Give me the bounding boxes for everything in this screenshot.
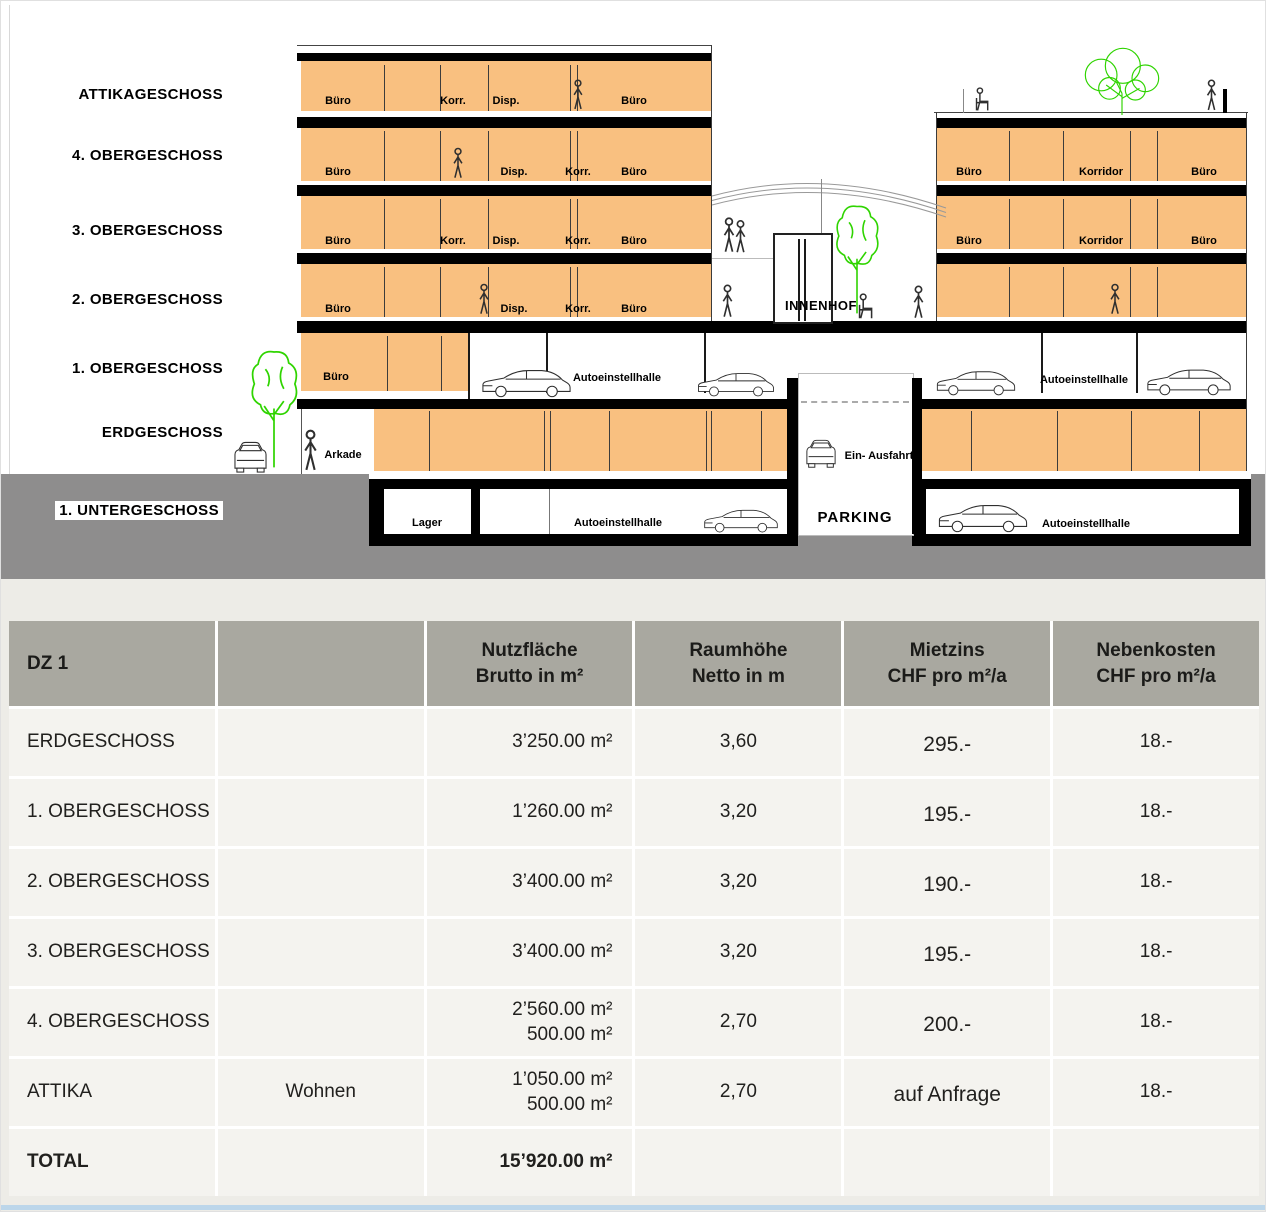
roof-outline-left xyxy=(297,45,711,46)
bottom-accent-bar xyxy=(1,1205,1266,1210)
big-tree-icon xyxy=(1061,45,1183,115)
person-icon xyxy=(733,219,748,256)
window-mullion xyxy=(550,411,551,471)
cell-floor: ERDGESCHOSS xyxy=(9,709,215,776)
roof-slab-right xyxy=(936,118,1246,128)
window-mullion xyxy=(971,411,972,471)
window-mullion xyxy=(1063,199,1064,249)
attika-roof-slab xyxy=(297,53,711,61)
cell-floor: 4. OBERGESCHOSS xyxy=(9,989,215,1056)
window-mullion xyxy=(1130,267,1131,317)
slab xyxy=(297,399,791,409)
slab xyxy=(297,117,711,128)
room-label: Büro xyxy=(621,236,647,247)
person-icon xyxy=(301,429,320,474)
room-label: Büro xyxy=(325,236,351,247)
floor-label-1og: 1. OBERGESCHOSS xyxy=(1,360,223,378)
roof-post xyxy=(1223,89,1227,113)
room-label: Büro xyxy=(621,304,647,315)
person-icon xyxy=(477,283,491,317)
cell-extra xyxy=(1053,1129,1259,1196)
window-mullion xyxy=(761,411,762,471)
window-mullion xyxy=(488,65,489,111)
slab xyxy=(297,253,711,264)
room-label: Büro xyxy=(956,236,982,247)
table-header-raumhoehe: Raumhöhe Netto in m xyxy=(635,621,841,706)
person-seated-icon xyxy=(973,87,992,113)
page: ATTIKAGESCHOSS 4. OBERGESCHOSS 3. OBERGE… xyxy=(0,0,1266,1212)
ramp-dashed-line xyxy=(801,401,909,403)
cell-rent: 195.- xyxy=(844,919,1050,986)
window-mullion xyxy=(1157,131,1158,181)
cell-area-total: 15’920.00 m² xyxy=(427,1129,633,1196)
room-label: Büro xyxy=(621,96,647,107)
cell-usage xyxy=(218,849,424,916)
cell-extra: 18.- xyxy=(1053,919,1259,986)
tree-icon xyxy=(247,337,301,475)
table-header-dz1: DZ 1 xyxy=(9,621,215,706)
window-mullion xyxy=(1057,411,1058,471)
window-mullion xyxy=(1130,131,1131,181)
courtyard-slab xyxy=(297,321,1246,333)
room-label: Büro xyxy=(323,372,349,383)
cell-extra: 18.- xyxy=(1053,849,1259,916)
cell-extra: 18.- xyxy=(1053,989,1259,1056)
table-header-usage xyxy=(218,621,424,706)
table-header-nutzflaeche: Nutzfläche Brutto in m² xyxy=(427,621,633,706)
room-label: Büro xyxy=(325,96,351,107)
cell-extra: 18.- xyxy=(1053,1059,1259,1126)
room-label: Disp. xyxy=(493,236,520,247)
car-icon xyxy=(935,498,1031,534)
wall xyxy=(468,333,470,399)
window-mullion xyxy=(384,131,385,181)
table-header-mietzins: Mietzins CHF pro m²/a xyxy=(844,621,1050,706)
window-mullion xyxy=(609,411,610,471)
room-label: Korr. xyxy=(565,236,591,247)
window-mullion xyxy=(1063,267,1064,317)
window-mullion xyxy=(711,411,712,471)
cell-rent: 195.- xyxy=(844,779,1050,846)
person-icon xyxy=(571,79,585,112)
right-block-edge xyxy=(1246,112,1247,471)
window-mullion xyxy=(1009,131,1010,181)
cell-usage xyxy=(218,709,424,776)
cell-height: 2,70 xyxy=(635,989,841,1056)
room-label: Korr. xyxy=(565,167,591,178)
building-section-diagram: ATTIKAGESCHOSS 4. OBERGESCHOSS 3. OBERGE… xyxy=(1,1,1266,601)
floor-label-eg: ERDGESCHOSS xyxy=(1,424,223,442)
cell-area: 1’260.00 m² xyxy=(427,779,633,846)
cell-usage xyxy=(218,919,424,986)
window-mullion xyxy=(706,411,707,471)
window-mullion xyxy=(384,65,385,111)
cell-height: 2,70 xyxy=(635,1059,841,1126)
window-mullion xyxy=(488,131,489,181)
slab xyxy=(297,185,711,196)
cell-height: 3,60 xyxy=(635,709,841,776)
cell-usage xyxy=(218,779,424,846)
cell-height xyxy=(635,1129,841,1196)
window-mullion xyxy=(1063,131,1064,181)
window-mullion xyxy=(440,131,441,181)
window-mullion xyxy=(1131,411,1132,471)
room-label: Büro xyxy=(325,167,351,178)
room-label: Autoeinstellhalle xyxy=(574,518,662,529)
slab xyxy=(936,253,1246,264)
floor-label-4og: 4. OBERGESCHOSS xyxy=(1,147,223,165)
cell-rent: 190.- xyxy=(844,849,1050,916)
cell-rent: auf Anfrage xyxy=(844,1059,1050,1126)
window-mullion xyxy=(488,199,489,249)
roof-pole xyxy=(963,89,964,113)
room-label: Büro xyxy=(1191,167,1217,178)
cell-height: 3,20 xyxy=(635,779,841,846)
cell-rent xyxy=(844,1129,1050,1196)
room-label: Büro xyxy=(325,304,351,315)
window-mullion xyxy=(1199,411,1200,471)
floor-label-3og: 3. OBERGESCHOSS xyxy=(1,222,223,240)
room-label: PARKING xyxy=(817,510,892,525)
cell-floor: 3. OBERGESCHOSS xyxy=(9,919,215,986)
room-label: Disp. xyxy=(501,167,528,178)
room-label: Disp. xyxy=(493,96,520,107)
shaft-line xyxy=(821,179,822,233)
cell-height: 3,20 xyxy=(635,919,841,986)
car-icon xyxy=(934,365,1018,397)
hall-column xyxy=(1136,333,1138,393)
slab xyxy=(918,399,1246,409)
cell-area: 3’400.00 m² xyxy=(427,919,633,986)
window-mullion xyxy=(429,411,430,471)
floor-label-2og: 2. OBERGESCHOSS xyxy=(1,291,223,309)
car-icon xyxy=(701,504,781,534)
room-label: Korr. xyxy=(440,236,466,247)
table-header-nebenkosten: Nebenkosten CHF pro m²/a xyxy=(1053,621,1259,706)
car-icon xyxy=(695,367,777,398)
courtyard-arch xyxy=(704,164,951,220)
cell-rent: 295.- xyxy=(844,709,1050,776)
cell-area: 3’400.00 m² xyxy=(427,849,633,916)
cell-floor: 1. OBERGESCHOSS xyxy=(9,779,215,846)
room-label: Ein- Ausfahrt xyxy=(845,451,914,462)
window-mullion xyxy=(1157,267,1158,317)
room-label: Korridor xyxy=(1079,236,1123,247)
cell-floor: 2. OBERGESCHOSS xyxy=(9,849,215,916)
cell-floor-total: TOTAL xyxy=(9,1129,215,1196)
window-mullion xyxy=(441,336,442,391)
person-icon xyxy=(1204,79,1219,113)
window-mullion xyxy=(384,267,385,317)
cell-area: 2’560.00 m² 500.00 m² xyxy=(427,989,633,1056)
window-mullion xyxy=(1130,199,1131,249)
person-icon xyxy=(911,285,926,321)
window-mullion xyxy=(1157,199,1158,249)
car-icon xyxy=(479,363,574,399)
cell-area: 1’050.00 m² 500.00 m² xyxy=(427,1059,633,1126)
terrace-line xyxy=(712,258,774,259)
room-label: Autoeinstellhalle xyxy=(573,373,661,384)
car-icon xyxy=(801,439,841,469)
room-label: Lager xyxy=(412,518,442,529)
floor-eg-left xyxy=(374,409,787,471)
hall-column xyxy=(549,489,550,534)
cell-extra: 18.- xyxy=(1053,709,1259,776)
room-label: Korr. xyxy=(440,96,466,107)
slab xyxy=(936,185,1246,196)
room-label: Autoeinstellhalle xyxy=(1040,375,1128,386)
person-icon xyxy=(451,147,465,181)
ramp-wall xyxy=(787,378,798,534)
cell-extra: 18.- xyxy=(1053,779,1259,846)
room-label: INNENHOF xyxy=(785,299,857,312)
person-icon xyxy=(1108,283,1122,317)
cell-usage xyxy=(218,1129,424,1196)
person-icon xyxy=(720,283,735,321)
window-mullion xyxy=(544,411,545,471)
room-label: Büro xyxy=(621,167,647,178)
cell-area: 3’250.00 m² xyxy=(427,709,633,776)
window-mullion xyxy=(440,267,441,317)
floor-label-attikageschoss: ATTIKAGESCHOSS xyxy=(1,86,223,104)
cell-height: 3,20 xyxy=(635,849,841,916)
room-label: Korridor xyxy=(1079,167,1123,178)
cell-rent: 200.- xyxy=(844,989,1050,1056)
floor-label-1ug: 1. UNTERGESCHOSS xyxy=(1,502,223,520)
cell-usage: Wohnen xyxy=(218,1059,424,1126)
room-label: Autoeinstellhalle xyxy=(1042,519,1130,530)
room-label: Arkade xyxy=(324,450,361,461)
room-label: Büro xyxy=(1191,236,1217,247)
window-mullion xyxy=(387,336,388,391)
window-mullion xyxy=(1009,199,1010,249)
cell-floor: ATTIKA xyxy=(9,1059,215,1126)
car-icon xyxy=(1144,363,1234,397)
room-label: Korr. xyxy=(565,304,591,315)
floor-2og-right xyxy=(936,264,1246,317)
window-mullion xyxy=(1009,267,1010,317)
room-label: Disp. xyxy=(501,304,528,315)
cell-usage xyxy=(218,989,424,1056)
room-label: Büro xyxy=(956,167,982,178)
window-mullion xyxy=(384,199,385,249)
rental-table: DZ 1 Nutzfläche Brutto in m² Raumhöhe Ne… xyxy=(9,621,1259,1196)
